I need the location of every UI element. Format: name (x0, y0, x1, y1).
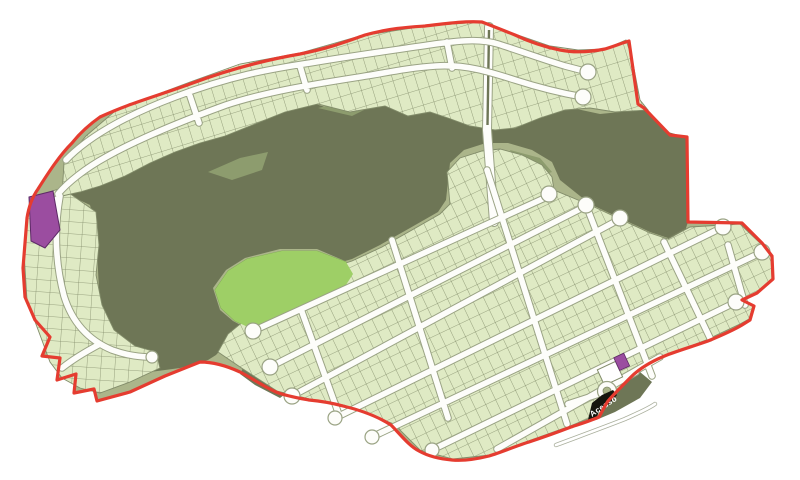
site-plan-map: Acesso (0, 0, 800, 480)
